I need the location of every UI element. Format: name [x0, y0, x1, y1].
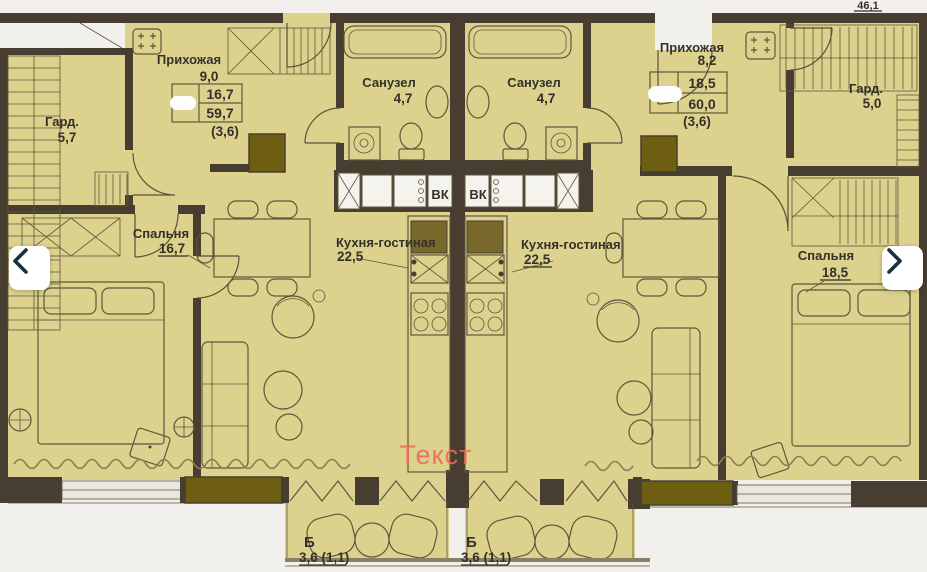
redaction-blob [170, 96, 196, 110]
corner-total-label: 46,1 [857, 0, 878, 12]
kitchen-right-name: Кухня-гостиная [521, 237, 621, 252]
balcony-right-area: 3,6 (1,1) [461, 550, 511, 565]
balcony-right-name: Б [466, 534, 477, 551]
shaft-right-label: ВК [469, 187, 486, 202]
chevron-left-icon [9, 246, 33, 276]
bedroom-right-name: Спальня [798, 248, 854, 263]
floorplan-viewer: 46,1 Прихожая 9,0 16,7 59,7 (3,6) Прихож… [0, 0, 927, 572]
redaction-blob [648, 86, 682, 102]
table-left-note: (3,6) [211, 124, 239, 139]
bedroom-left-area: 16,7 [159, 241, 185, 256]
bedroom-left-name: Спальня [133, 226, 189, 241]
fridge-right [467, 221, 503, 253]
table-left-total: 59,7 [206, 105, 233, 121]
table-left-living: 16,7 [206, 86, 233, 102]
hallway-left-area: 9,0 [200, 69, 219, 84]
next-button[interactable] [882, 246, 923, 290]
wardrobe-left-name: Гард. [45, 114, 79, 129]
table-right-note: (3,6) [683, 114, 711, 129]
balcony-left-area: 3,6 (1,1) [299, 550, 349, 565]
hallway-left-name: Прихожая [157, 52, 221, 67]
prev-button[interactable] [9, 246, 50, 290]
bedroom-right-area: 18,5 [822, 265, 849, 280]
shaft-left-label: ВК [431, 187, 448, 202]
floor-plan: 46,1 Прихожая 9,0 16,7 59,7 (3,6) Прихож… [0, 0, 927, 572]
hallway-right-area: 8,2 [698, 53, 717, 68]
table-right-total: 60,0 [688, 96, 715, 112]
balcony-left-name: Б [304, 534, 315, 551]
chevron-right-icon [882, 246, 906, 276]
table-right-living: 18,5 [688, 75, 715, 91]
watermark-text: Текст [400, 440, 473, 470]
kitchen-left-area: 22,5 [337, 249, 364, 264]
bathroom-right-name: Санузел [507, 75, 560, 90]
kitchen-left-name: Кухня-гостиная [336, 235, 436, 250]
wardrobe-right-area: 5,0 [863, 96, 882, 111]
kitchen-right-area: 22,5 [524, 252, 551, 267]
wardrobe-left-area: 5,7 [58, 130, 77, 145]
bathroom-left-area: 4,7 [394, 91, 413, 106]
wardrobe-right-name: Гард. [849, 81, 883, 96]
bathroom-left-name: Санузел [362, 75, 415, 90]
bathroom-right-area: 4,7 [537, 91, 556, 106]
